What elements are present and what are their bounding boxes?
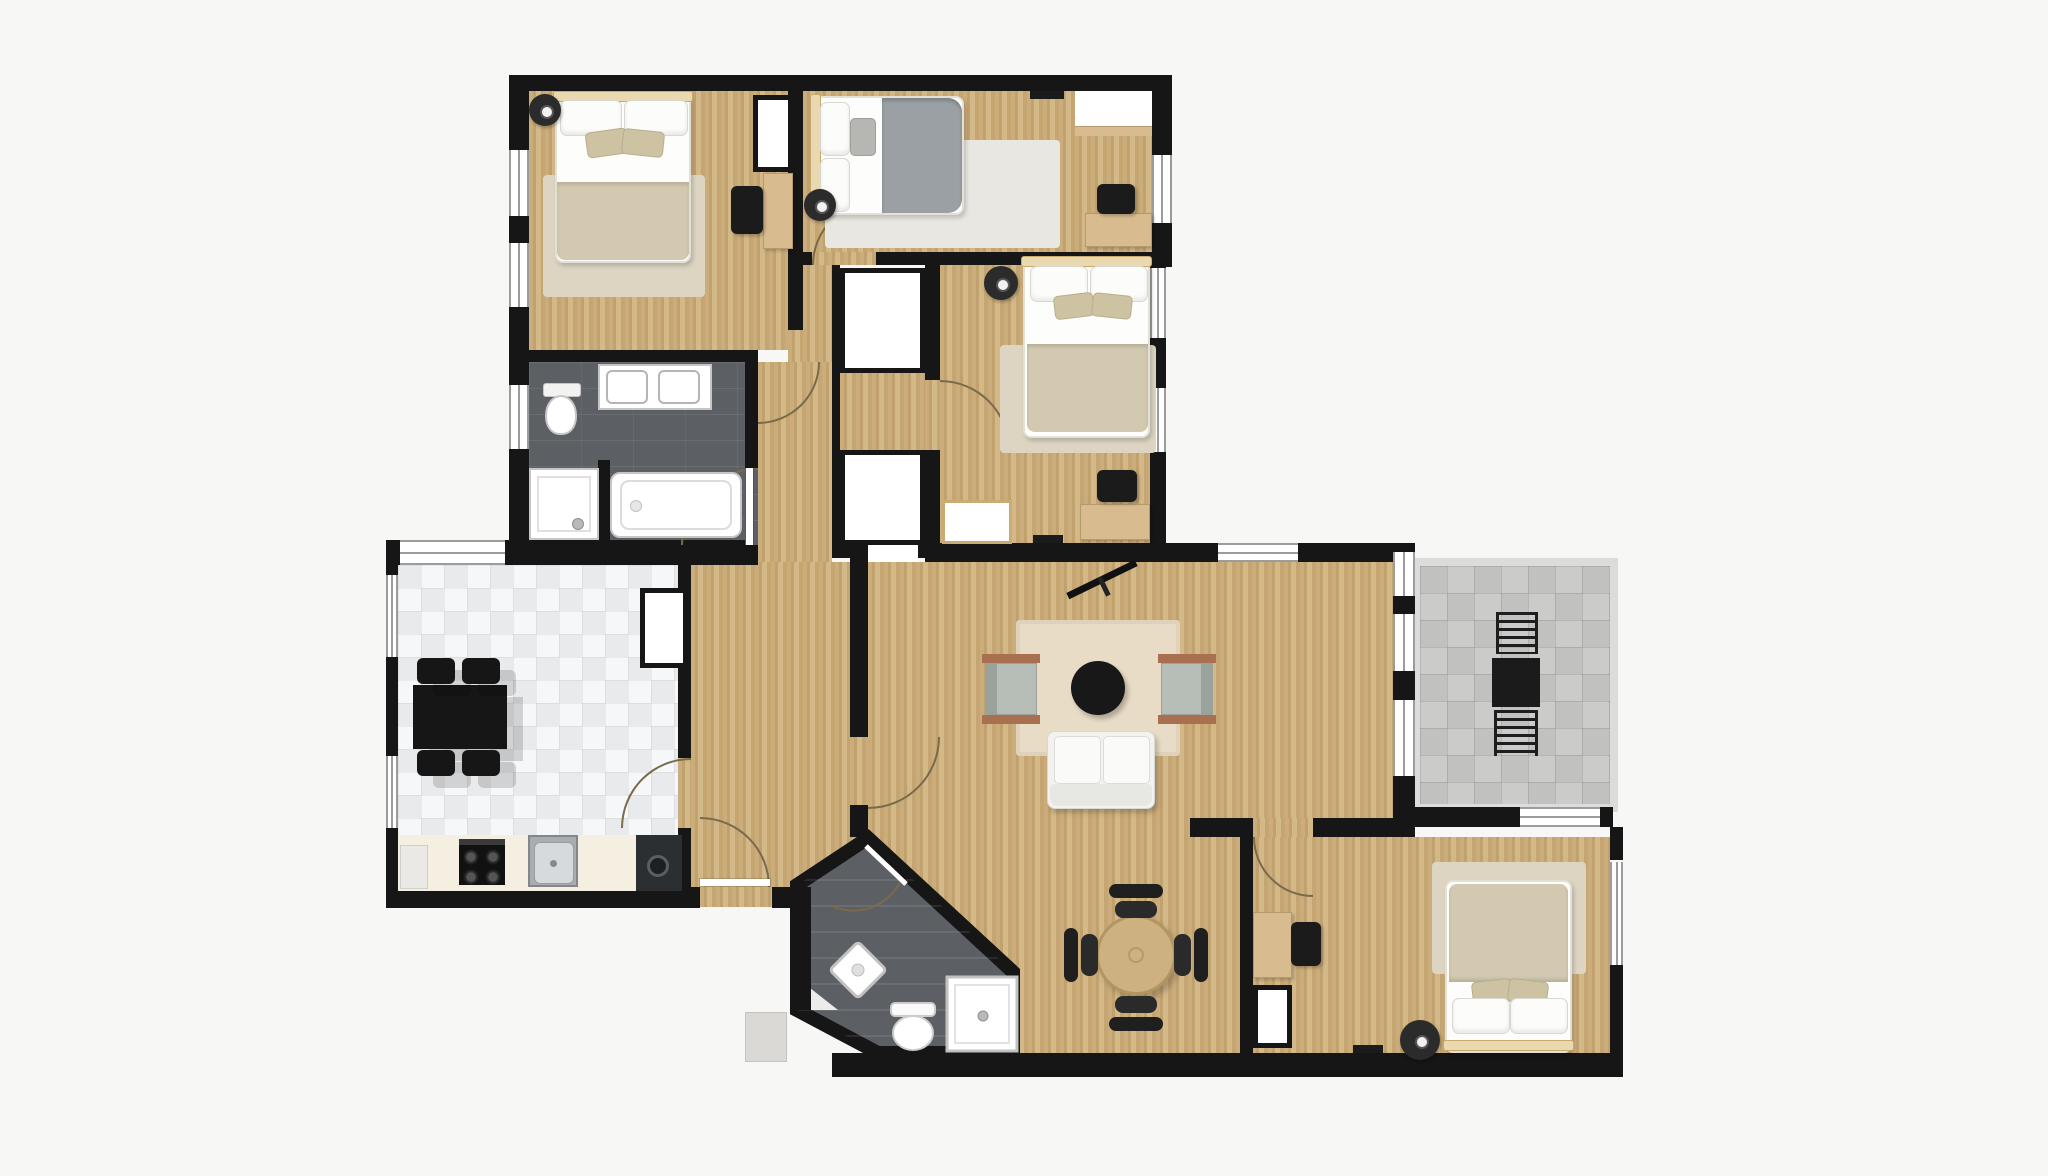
kitchen-chair-c xyxy=(417,750,455,776)
desk-bed4 xyxy=(1253,912,1292,978)
wall-shower-stub xyxy=(598,460,610,540)
wall-bath-right-a xyxy=(745,362,758,468)
doorway-hall-gap xyxy=(788,330,803,362)
window-kitchen-top xyxy=(400,540,505,565)
wall-living-top-a xyxy=(850,543,868,562)
desk-chair-bed1 xyxy=(731,186,763,234)
wall-dining-bed4-divider xyxy=(1240,837,1253,1060)
closet-bed1 xyxy=(753,95,793,172)
desk-chair-bed4 xyxy=(1291,922,1321,966)
wall-patio-bed4-b xyxy=(1600,807,1613,827)
ceiling-light-icon-bed1 xyxy=(529,94,561,126)
bed-4-pillow-b xyxy=(1510,998,1568,1034)
sofa-cushion-a xyxy=(1054,736,1101,784)
dining-chair-north xyxy=(1109,884,1163,920)
wall-living-left-a xyxy=(850,562,868,737)
closet-nook-shelf xyxy=(1075,126,1152,136)
kitchen-chair-d xyxy=(462,750,500,776)
sofa-back xyxy=(1050,784,1152,806)
kitchen-chair-b xyxy=(462,658,500,684)
bistro-table xyxy=(1492,658,1540,707)
window-bed3-right-a xyxy=(1150,268,1166,338)
wall-living-top-b xyxy=(925,543,1218,562)
dining-table-inner-ring xyxy=(1128,947,1144,963)
dining-chair-east xyxy=(1170,928,1208,982)
wall-bed2-bottom-a xyxy=(788,252,812,265)
wall-bed3-left-a xyxy=(925,265,940,380)
window-bed1-b xyxy=(509,243,529,307)
bed-2-blanket xyxy=(882,98,962,213)
desk-bed3 xyxy=(1080,504,1150,540)
wall-bed4-right-a xyxy=(1610,827,1623,860)
stove-knobs xyxy=(459,839,505,845)
armchair-left-back xyxy=(985,663,997,715)
toilet-main-bowl xyxy=(545,395,577,435)
dining-chair-west xyxy=(1064,928,1102,982)
bed-1-blanket xyxy=(557,182,689,260)
bed-3-accent-pillow-a xyxy=(1053,292,1096,321)
wall-bottom xyxy=(832,1053,1613,1077)
shower-main-drain xyxy=(572,518,584,530)
threshold-bed3 xyxy=(1033,535,1063,543)
armchair-right-arm-top xyxy=(1158,654,1216,663)
window-bed2-right xyxy=(1152,155,1172,223)
wall-kitchen-bottom xyxy=(386,891,700,908)
kitchen-chair-a xyxy=(417,658,455,684)
door-leaf-bathroom xyxy=(746,468,753,545)
shower-room xyxy=(780,820,1030,1085)
bed-1-accent-pillow-b xyxy=(621,128,665,158)
kitchen-table xyxy=(413,685,507,749)
bed-2-pillow-a xyxy=(820,102,850,156)
wall-top xyxy=(509,75,1172,91)
desk-chair-bed2 xyxy=(1097,184,1135,214)
door-leaf-entry xyxy=(700,879,770,886)
armchair-right xyxy=(1158,654,1216,724)
toilet-bowl xyxy=(893,1016,933,1050)
wall-patio-bed4-a xyxy=(1415,807,1520,827)
bed-4-pillow-a xyxy=(1452,998,1510,1034)
desk-chair-bed3 xyxy=(1097,470,1137,502)
dresser-bed3 xyxy=(942,500,1012,544)
window-kitchen-left-a xyxy=(386,575,398,657)
bathtub-drain xyxy=(630,500,642,512)
closet-pocket-floor xyxy=(840,373,925,450)
doorway-living xyxy=(850,737,868,805)
window-living-top xyxy=(1218,543,1298,562)
armchair-left-arm-top xyxy=(982,654,1040,663)
kitchen-faucet xyxy=(550,860,557,867)
armchair-right-back xyxy=(1201,663,1213,715)
doorway-bed3 xyxy=(925,380,940,450)
dining-chair-south xyxy=(1109,994,1163,1032)
toilet-tank xyxy=(891,1003,935,1016)
bistro-chair-north xyxy=(1496,612,1538,654)
coffee-table-round xyxy=(1071,661,1125,715)
window-living-right-b xyxy=(1393,614,1415,671)
dishwasher-dial xyxy=(647,855,669,877)
bed-4-headboard xyxy=(1443,1040,1574,1051)
window-bed4-right xyxy=(1610,862,1623,965)
wall-living-bottom-b xyxy=(1313,818,1415,837)
armchair-left xyxy=(982,654,1040,724)
window-bed4-patio xyxy=(1520,807,1600,827)
window-bathroom xyxy=(509,385,529,449)
bed-4-blanket xyxy=(1449,884,1568,982)
floor-plan xyxy=(0,0,2048,1176)
desk-bed1 xyxy=(763,173,793,249)
bed-3-accent-pillow-b xyxy=(1091,292,1133,320)
window-kitchen-left-b xyxy=(386,756,398,828)
ceiling-light-icon-bed3 xyxy=(984,266,1018,300)
cabinet-kitchen xyxy=(400,845,428,889)
closet-nook-bed2 xyxy=(1075,91,1152,129)
window-bed1-a xyxy=(509,150,529,216)
bed-3-blanket xyxy=(1027,344,1148,432)
wall-left xyxy=(509,75,529,565)
wall-bed3-left-b xyxy=(925,450,940,545)
closet-hall-a xyxy=(840,268,925,373)
wall-shower-room-left xyxy=(797,887,811,1010)
window-living-right-a xyxy=(1393,552,1415,596)
sofa-loveseat xyxy=(1047,731,1155,809)
window-living-right-c xyxy=(1393,700,1415,776)
vanity-sink-b xyxy=(658,370,700,404)
wall-shelf-bed2 xyxy=(1030,91,1064,99)
hall-upper-floor xyxy=(803,252,832,362)
doorway-entry xyxy=(700,887,772,907)
stove xyxy=(459,839,505,885)
wall-closet-left xyxy=(832,265,840,545)
closet-bed4 xyxy=(1253,985,1292,1048)
armchair-left-arm-bottom xyxy=(982,715,1040,724)
ceiling-light-icon-bed4 xyxy=(1400,1020,1440,1060)
closet-hall-b xyxy=(840,450,925,545)
pantry-kitchen xyxy=(640,588,688,668)
wall-living-left-b xyxy=(850,805,868,837)
threshold-bed4 xyxy=(1353,1045,1383,1053)
ceiling-light-icon-bed2 xyxy=(804,189,836,221)
sofa-cushion-b xyxy=(1103,736,1150,784)
bed-2-accent-pillow xyxy=(850,118,876,156)
desk-bed2 xyxy=(1085,213,1152,247)
wall-bed1-bath xyxy=(529,350,758,362)
closet-opening-living xyxy=(868,545,918,562)
armchair-right-arm-bottom xyxy=(1158,715,1216,724)
bistro-chair-south xyxy=(1494,710,1538,756)
doorway-bed4 xyxy=(1253,818,1313,837)
wall-living-bottom-a xyxy=(1190,818,1253,837)
shower-drain xyxy=(978,1011,988,1021)
vanity-sink-a xyxy=(606,370,648,404)
